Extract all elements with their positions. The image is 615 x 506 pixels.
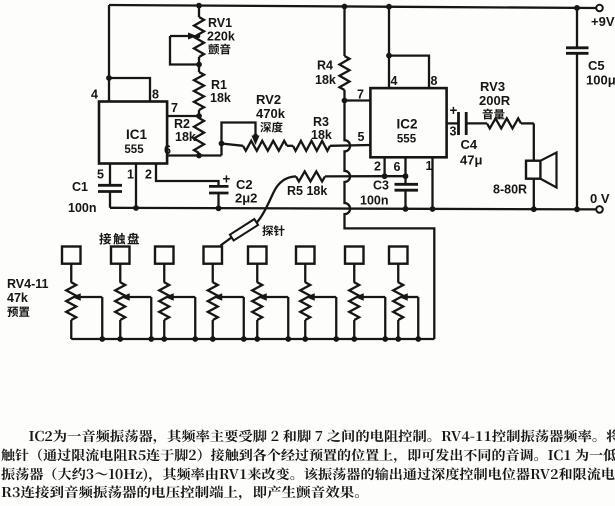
svg-text:C4: C4	[461, 137, 478, 152]
svg-text:100n: 100n	[360, 194, 389, 208]
svg-text:接触盘: 接触盘	[99, 229, 141, 248]
svg-text:4: 4	[91, 88, 98, 102]
svg-text:4: 4	[391, 74, 398, 88]
svg-text:+: +	[450, 103, 458, 118]
svg-text:IC2: IC2	[396, 117, 417, 132]
svg-text:预置: 预置	[7, 304, 30, 320]
svg-text:8: 8	[152, 88, 159, 102]
svg-text:3: 3	[450, 125, 457, 139]
svg-text:1: 1	[127, 168, 134, 182]
svg-text:18k: 18k	[311, 128, 332, 142]
svg-text:18k: 18k	[175, 130, 196, 144]
svg-text:0 V: 0 V	[590, 191, 610, 206]
svg-text:R5 18k: R5 18k	[287, 184, 327, 198]
svg-text:2: 2	[145, 168, 152, 182]
svg-text:8-80R: 8-80R	[493, 183, 527, 197]
svg-text:RV2: RV2	[256, 92, 281, 107]
svg-text:1: 1	[426, 159, 433, 173]
svg-text:音量: 音量	[482, 107, 505, 123]
svg-text:+: +	[223, 172, 231, 187]
svg-text:555: 555	[124, 144, 144, 156]
svg-text:R3: R3	[313, 115, 329, 129]
svg-text:5: 5	[358, 130, 365, 144]
svg-text:IC1: IC1	[126, 127, 148, 142]
svg-text:7: 7	[357, 88, 364, 102]
svg-text:8: 8	[431, 74, 438, 88]
svg-text:18k: 18k	[315, 73, 336, 87]
svg-text:颤音: 颤音	[208, 42, 231, 58]
svg-text:6: 6	[164, 143, 171, 157]
svg-text:R2: R2	[174, 117, 190, 131]
svg-text:C5: C5	[588, 58, 605, 73]
svg-text:C3: C3	[373, 179, 389, 193]
svg-text:47μ: 47μ	[460, 153, 482, 168]
svg-text:555: 555	[397, 134, 417, 146]
svg-text:R1: R1	[211, 78, 227, 92]
svg-text:深度: 深度	[260, 120, 283, 136]
svg-text:5: 5	[97, 168, 104, 182]
svg-text:+9V: +9V	[591, 14, 615, 29]
svg-text:探针: 探针	[262, 223, 285, 239]
svg-text:18k: 18k	[210, 91, 231, 105]
svg-text:RV3: RV3	[480, 79, 505, 94]
svg-text:R4: R4	[317, 59, 333, 73]
svg-text:RV1: RV1	[208, 16, 232, 30]
svg-text:7: 7	[171, 101, 178, 115]
svg-text:47k: 47k	[7, 291, 28, 305]
svg-text:2μ2: 2μ2	[235, 191, 257, 206]
svg-text:C1: C1	[72, 180, 88, 194]
svg-text:2: 2	[374, 160, 381, 174]
svg-text:RV4-11: RV4-11	[7, 277, 49, 291]
svg-text:6: 6	[394, 160, 401, 174]
svg-text:100μ: 100μ	[586, 73, 615, 88]
svg-text:100n: 100n	[68, 201, 97, 215]
